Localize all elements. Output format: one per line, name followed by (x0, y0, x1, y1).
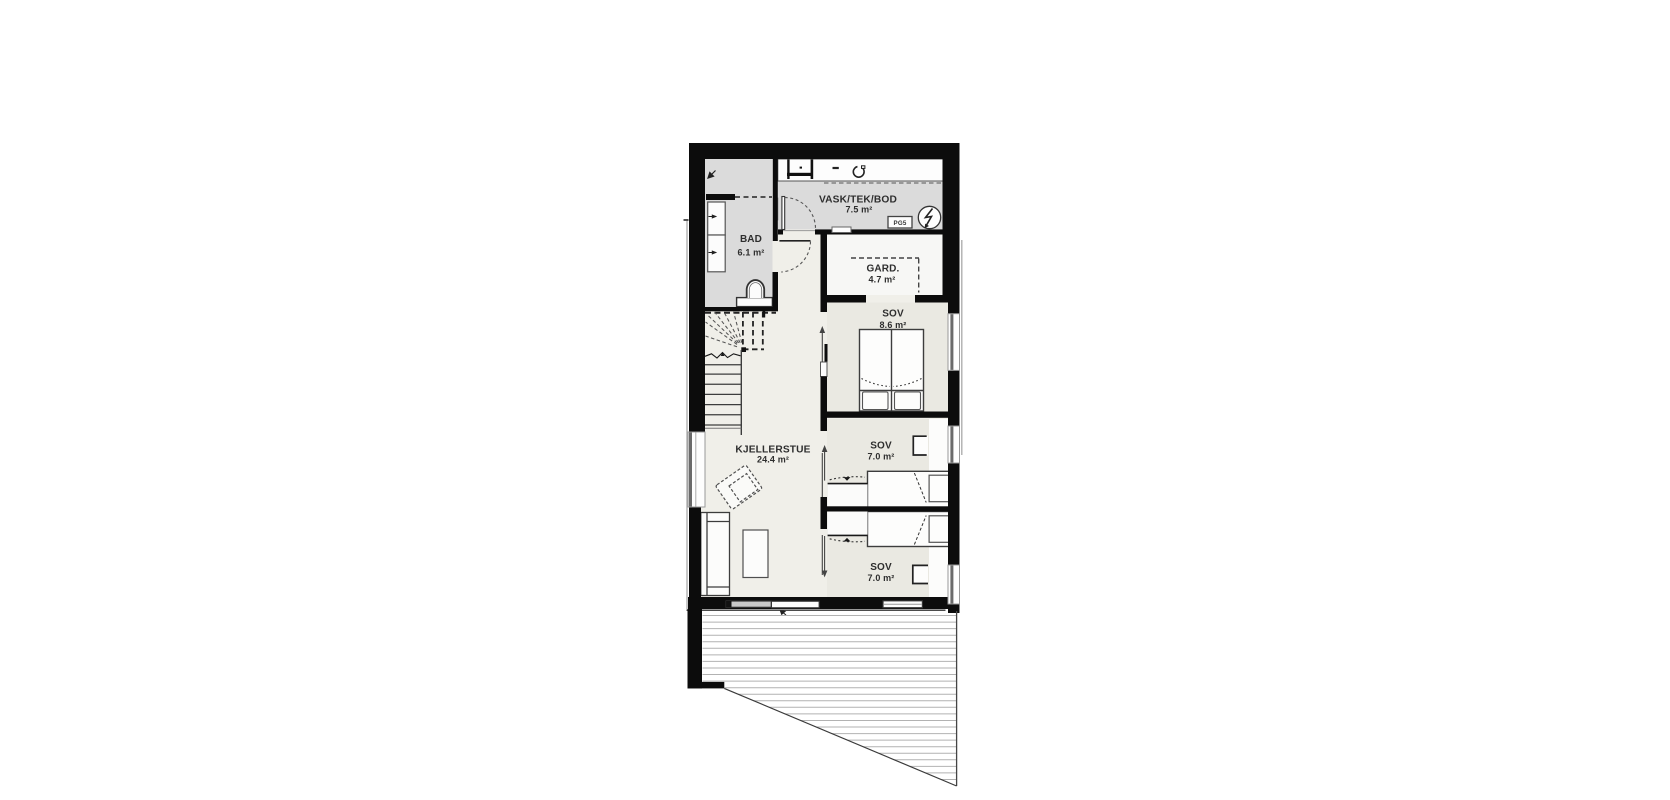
svg-text:BAD: BAD (740, 234, 762, 245)
svg-text:8.6 m²: 8.6 m² (880, 320, 907, 330)
svg-text:GARD.: GARD. (867, 264, 900, 275)
svg-text:SOV: SOV (870, 441, 892, 452)
svg-text:7.0 m²: 7.0 m² (868, 573, 895, 583)
svg-text:7.5 m²: 7.5 m² (846, 205, 873, 215)
svg-text:4.7 m²: 4.7 m² (869, 275, 896, 285)
svg-text:SOV: SOV (870, 562, 892, 573)
svg-text:7.0 m²: 7.0 m² (868, 452, 895, 462)
svg-text:24.4 m²: 24.4 m² (757, 455, 789, 465)
svg-text:SOV: SOV (882, 309, 904, 320)
svg-text:PG5: PG5 (894, 220, 907, 227)
svg-text:6.1 m²: 6.1 m² (738, 248, 765, 258)
